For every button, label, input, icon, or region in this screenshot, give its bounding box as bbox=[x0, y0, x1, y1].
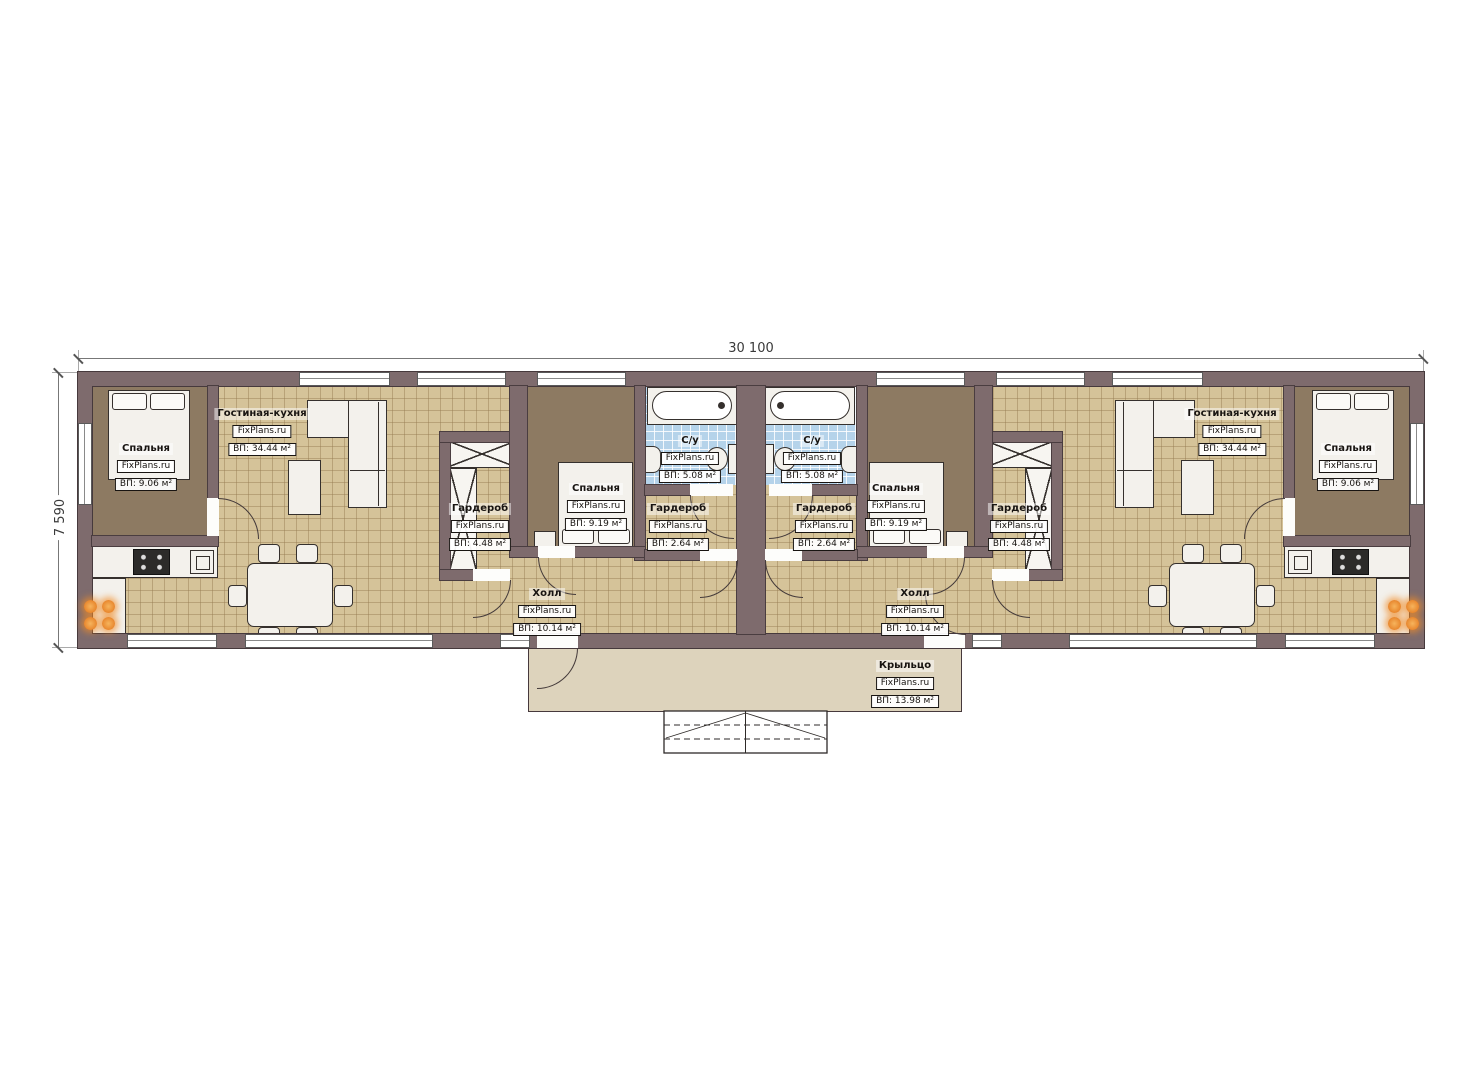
entry-door-opening bbox=[924, 634, 965, 648]
room-name: Гостиная-кухня bbox=[1184, 408, 1279, 420]
room-label-left-hall: Холл FixPlans.ru ВП: 10.14 м² bbox=[513, 583, 581, 636]
wall-segment bbox=[440, 432, 520, 442]
wall-segment bbox=[857, 386, 867, 560]
room-area: ВП: 10.14 м² bbox=[513, 623, 581, 636]
watermark: FixPlans.ru bbox=[451, 520, 509, 533]
room-area: ВП: 2.64 м² bbox=[793, 538, 855, 551]
window bbox=[417, 372, 506, 386]
room-label-right-wardrobe-1: Гардероб FixPlans.ru ВП: 4.48 м² bbox=[988, 498, 1050, 551]
room-name: Спальня bbox=[1321, 443, 1375, 455]
watermark: FixPlans.ru bbox=[233, 425, 291, 438]
room-label-right-bathroom: С/у FixPlans.ru ВП: 5.08 м² bbox=[781, 430, 843, 483]
room-name: Гостиная-кухня bbox=[214, 408, 309, 420]
watermark: FixPlans.ru bbox=[567, 500, 625, 513]
wall-segment bbox=[982, 432, 1062, 442]
watermark: FixPlans.ru bbox=[661, 452, 719, 465]
wall-segment bbox=[812, 485, 857, 495]
room-label-left-living: Гостиная-кухня FixPlans.ru ВП: 34.44 м² bbox=[214, 403, 309, 456]
room-area: ВП: 5.08 м² bbox=[781, 470, 843, 483]
entry-door-opening bbox=[537, 634, 578, 648]
watermark: FixPlans.ru bbox=[117, 460, 175, 473]
room-area: ВП: 2.64 м² bbox=[647, 538, 709, 551]
wall-segment bbox=[440, 570, 473, 580]
room-name: Гардероб bbox=[449, 503, 511, 515]
dimension-line-top bbox=[78, 358, 1424, 359]
room-area: ВП: 4.48 м² bbox=[449, 538, 511, 551]
watermark: FixPlans.ru bbox=[886, 605, 944, 618]
dimension-top-label: 30 100 bbox=[724, 341, 778, 356]
watermark: FixPlans.ru bbox=[876, 677, 934, 690]
window bbox=[1069, 634, 1257, 648]
window bbox=[127, 634, 217, 648]
floor-plan: 30 100 7 590 bbox=[0, 0, 1473, 1080]
window bbox=[972, 634, 1002, 648]
watermark: FixPlans.ru bbox=[867, 500, 925, 513]
wall-segment bbox=[857, 547, 927, 557]
room-name: Спальня bbox=[869, 483, 923, 495]
wall-segment bbox=[575, 547, 645, 557]
watermark: FixPlans.ru bbox=[1319, 460, 1377, 473]
window bbox=[1285, 634, 1375, 648]
burner-flame-icon bbox=[1388, 600, 1401, 613]
party-wall bbox=[737, 386, 765, 634]
window bbox=[1112, 372, 1203, 386]
window bbox=[245, 634, 433, 648]
room-area: ВП: 9.06 м² bbox=[115, 478, 177, 491]
room-area: ВП: 9.19 м² bbox=[565, 518, 627, 531]
room-label-porch: Крыльцо FixPlans.ru ВП: 13.98 м² bbox=[871, 655, 939, 708]
room-area: ВП: 9.19 м² bbox=[865, 518, 927, 531]
room-name: Крыльцо bbox=[876, 660, 934, 672]
watermark: FixPlans.ru bbox=[990, 520, 1048, 533]
wall-segment bbox=[510, 547, 538, 557]
room-name: Гардероб bbox=[647, 503, 709, 515]
room-name: Холл bbox=[897, 588, 932, 600]
room-area: ВП: 5.08 м² bbox=[659, 470, 721, 483]
room-label-right-wardrobe-2: Гардероб FixPlans.ru ВП: 2.64 м² bbox=[793, 498, 855, 551]
wall-segment bbox=[1052, 432, 1062, 580]
burner-flame-icon bbox=[102, 600, 115, 613]
burner-flame-icon bbox=[1406, 600, 1419, 613]
room-label-right-bedroom-1: Спальня FixPlans.ru ВП: 9.06 м² bbox=[1317, 438, 1379, 491]
window bbox=[500, 634, 530, 648]
room-area: ВП: 9.06 м² bbox=[1317, 478, 1379, 491]
watermark: FixPlans.ru bbox=[783, 452, 841, 465]
room-label-left-bedroom-2: Спальня FixPlans.ru ВП: 9.19 м² bbox=[565, 478, 627, 531]
window bbox=[996, 372, 1085, 386]
room-label-left-bedroom-1: Спальня FixPlans.ru ВП: 9.06 м² bbox=[115, 438, 177, 491]
window bbox=[1410, 423, 1424, 505]
room-area: ВП: 4.48 м² bbox=[988, 538, 1050, 551]
room-label-right-bedroom-2: Спальня FixPlans.ru ВП: 9.19 м² bbox=[865, 478, 927, 531]
wall-segment bbox=[510, 386, 527, 557]
burner-flame-icon bbox=[102, 617, 115, 630]
room-name: Спальня bbox=[569, 483, 623, 495]
room-name: Гардероб bbox=[988, 503, 1050, 515]
wall-segment bbox=[92, 536, 218, 546]
wall-segment bbox=[802, 550, 857, 560]
dimension-left-label: 7 590 bbox=[53, 495, 68, 540]
room-name: Холл bbox=[529, 588, 564, 600]
burner-flame-icon bbox=[1388, 617, 1401, 630]
room-label-right-living: Гостиная-кухня FixPlans.ru ВП: 34.44 м² bbox=[1184, 403, 1279, 456]
wall-segment bbox=[1029, 570, 1062, 580]
burner-flame-icon bbox=[1406, 617, 1419, 630]
room-name: С/у bbox=[678, 435, 702, 447]
wall-segment bbox=[1284, 536, 1410, 546]
watermark: FixPlans.ru bbox=[649, 520, 707, 533]
wall-segment bbox=[635, 386, 645, 560]
watermark: FixPlans.ru bbox=[1203, 425, 1261, 438]
room-area: ВП: 13.98 м² bbox=[871, 695, 939, 708]
window bbox=[299, 372, 390, 386]
entrance-steps bbox=[663, 710, 829, 758]
burner-flame-icon bbox=[84, 617, 97, 630]
window bbox=[78, 423, 92, 505]
watermark: FixPlans.ru bbox=[518, 605, 576, 618]
room-area: ВП: 10.14 м² bbox=[881, 623, 949, 636]
wall-segment bbox=[645, 485, 690, 495]
wall-segment bbox=[645, 550, 700, 560]
room-name: Спальня bbox=[119, 443, 173, 455]
room-label-left-bathroom: С/у FixPlans.ru ВП: 5.08 м² bbox=[659, 430, 721, 483]
room-label-left-wardrobe-2: Гардероб FixPlans.ru ВП: 2.64 м² bbox=[647, 498, 709, 551]
room-name: Гардероб bbox=[793, 503, 855, 515]
room-name: С/у bbox=[800, 435, 824, 447]
window bbox=[876, 372, 965, 386]
burner-flame-icon bbox=[84, 600, 97, 613]
room-label-left-wardrobe-1: Гардероб FixPlans.ru ВП: 4.48 м² bbox=[449, 498, 511, 551]
wall-segment bbox=[1284, 386, 1294, 498]
room-area: ВП: 34.44 м² bbox=[1198, 443, 1266, 456]
watermark: FixPlans.ru bbox=[795, 520, 853, 533]
room-area: ВП: 34.44 м² bbox=[228, 443, 296, 456]
room-label-right-hall: Холл FixPlans.ru ВП: 10.14 м² bbox=[881, 583, 949, 636]
window bbox=[537, 372, 626, 386]
